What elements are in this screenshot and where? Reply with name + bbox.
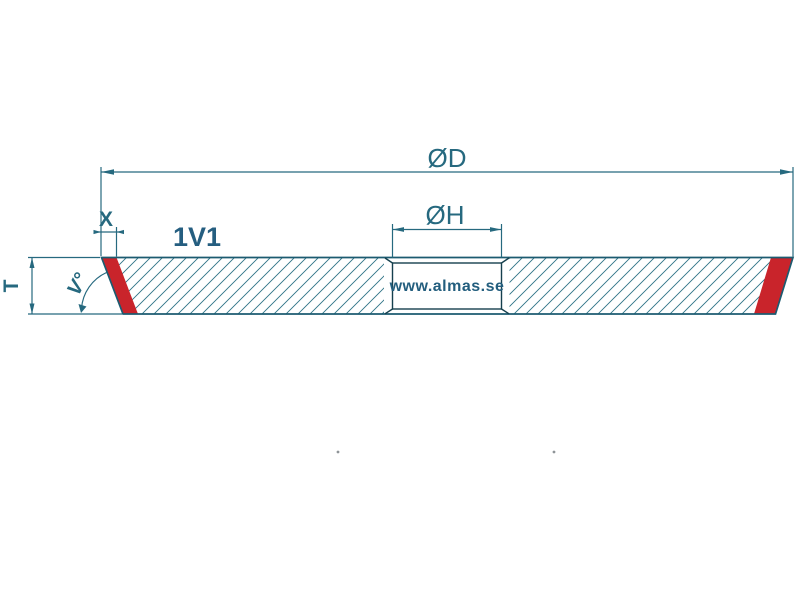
dim-thickness: T xyxy=(0,258,122,315)
dim-angle: V° xyxy=(63,269,106,313)
dot-right xyxy=(553,451,556,454)
watermark-text: www.almas.se xyxy=(389,278,505,295)
dim-od-arrow-right xyxy=(780,169,793,174)
dim-edge-width: X xyxy=(94,208,125,257)
angle-arc-arrow xyxy=(79,304,87,313)
dim-oh-arrow-right xyxy=(490,227,502,232)
drawing-canvas: ØD ØH X T xyxy=(0,0,800,600)
artifact-dots xyxy=(337,451,556,454)
dim-oh-arrow-left xyxy=(393,227,405,232)
dim-t-arrow-bottom xyxy=(30,304,35,315)
angle-label: V° xyxy=(63,269,93,299)
wheel-type-label: 1V1 xyxy=(173,222,221,252)
dim-od-arrow-left xyxy=(101,169,114,174)
dim-x-arrow-right xyxy=(117,230,125,234)
wheel-cross-section-diagram: ØD ØH X T xyxy=(0,0,800,600)
dim-od-label: ØD xyxy=(428,143,467,173)
dim-hole-diameter: ØH xyxy=(393,200,502,258)
dim-t-arrow-top xyxy=(30,258,35,269)
dim-t-label: T xyxy=(0,279,23,292)
dot-left xyxy=(337,451,340,454)
dim-oh-label: ØH xyxy=(426,200,465,230)
dim-x-label: X xyxy=(99,208,113,231)
